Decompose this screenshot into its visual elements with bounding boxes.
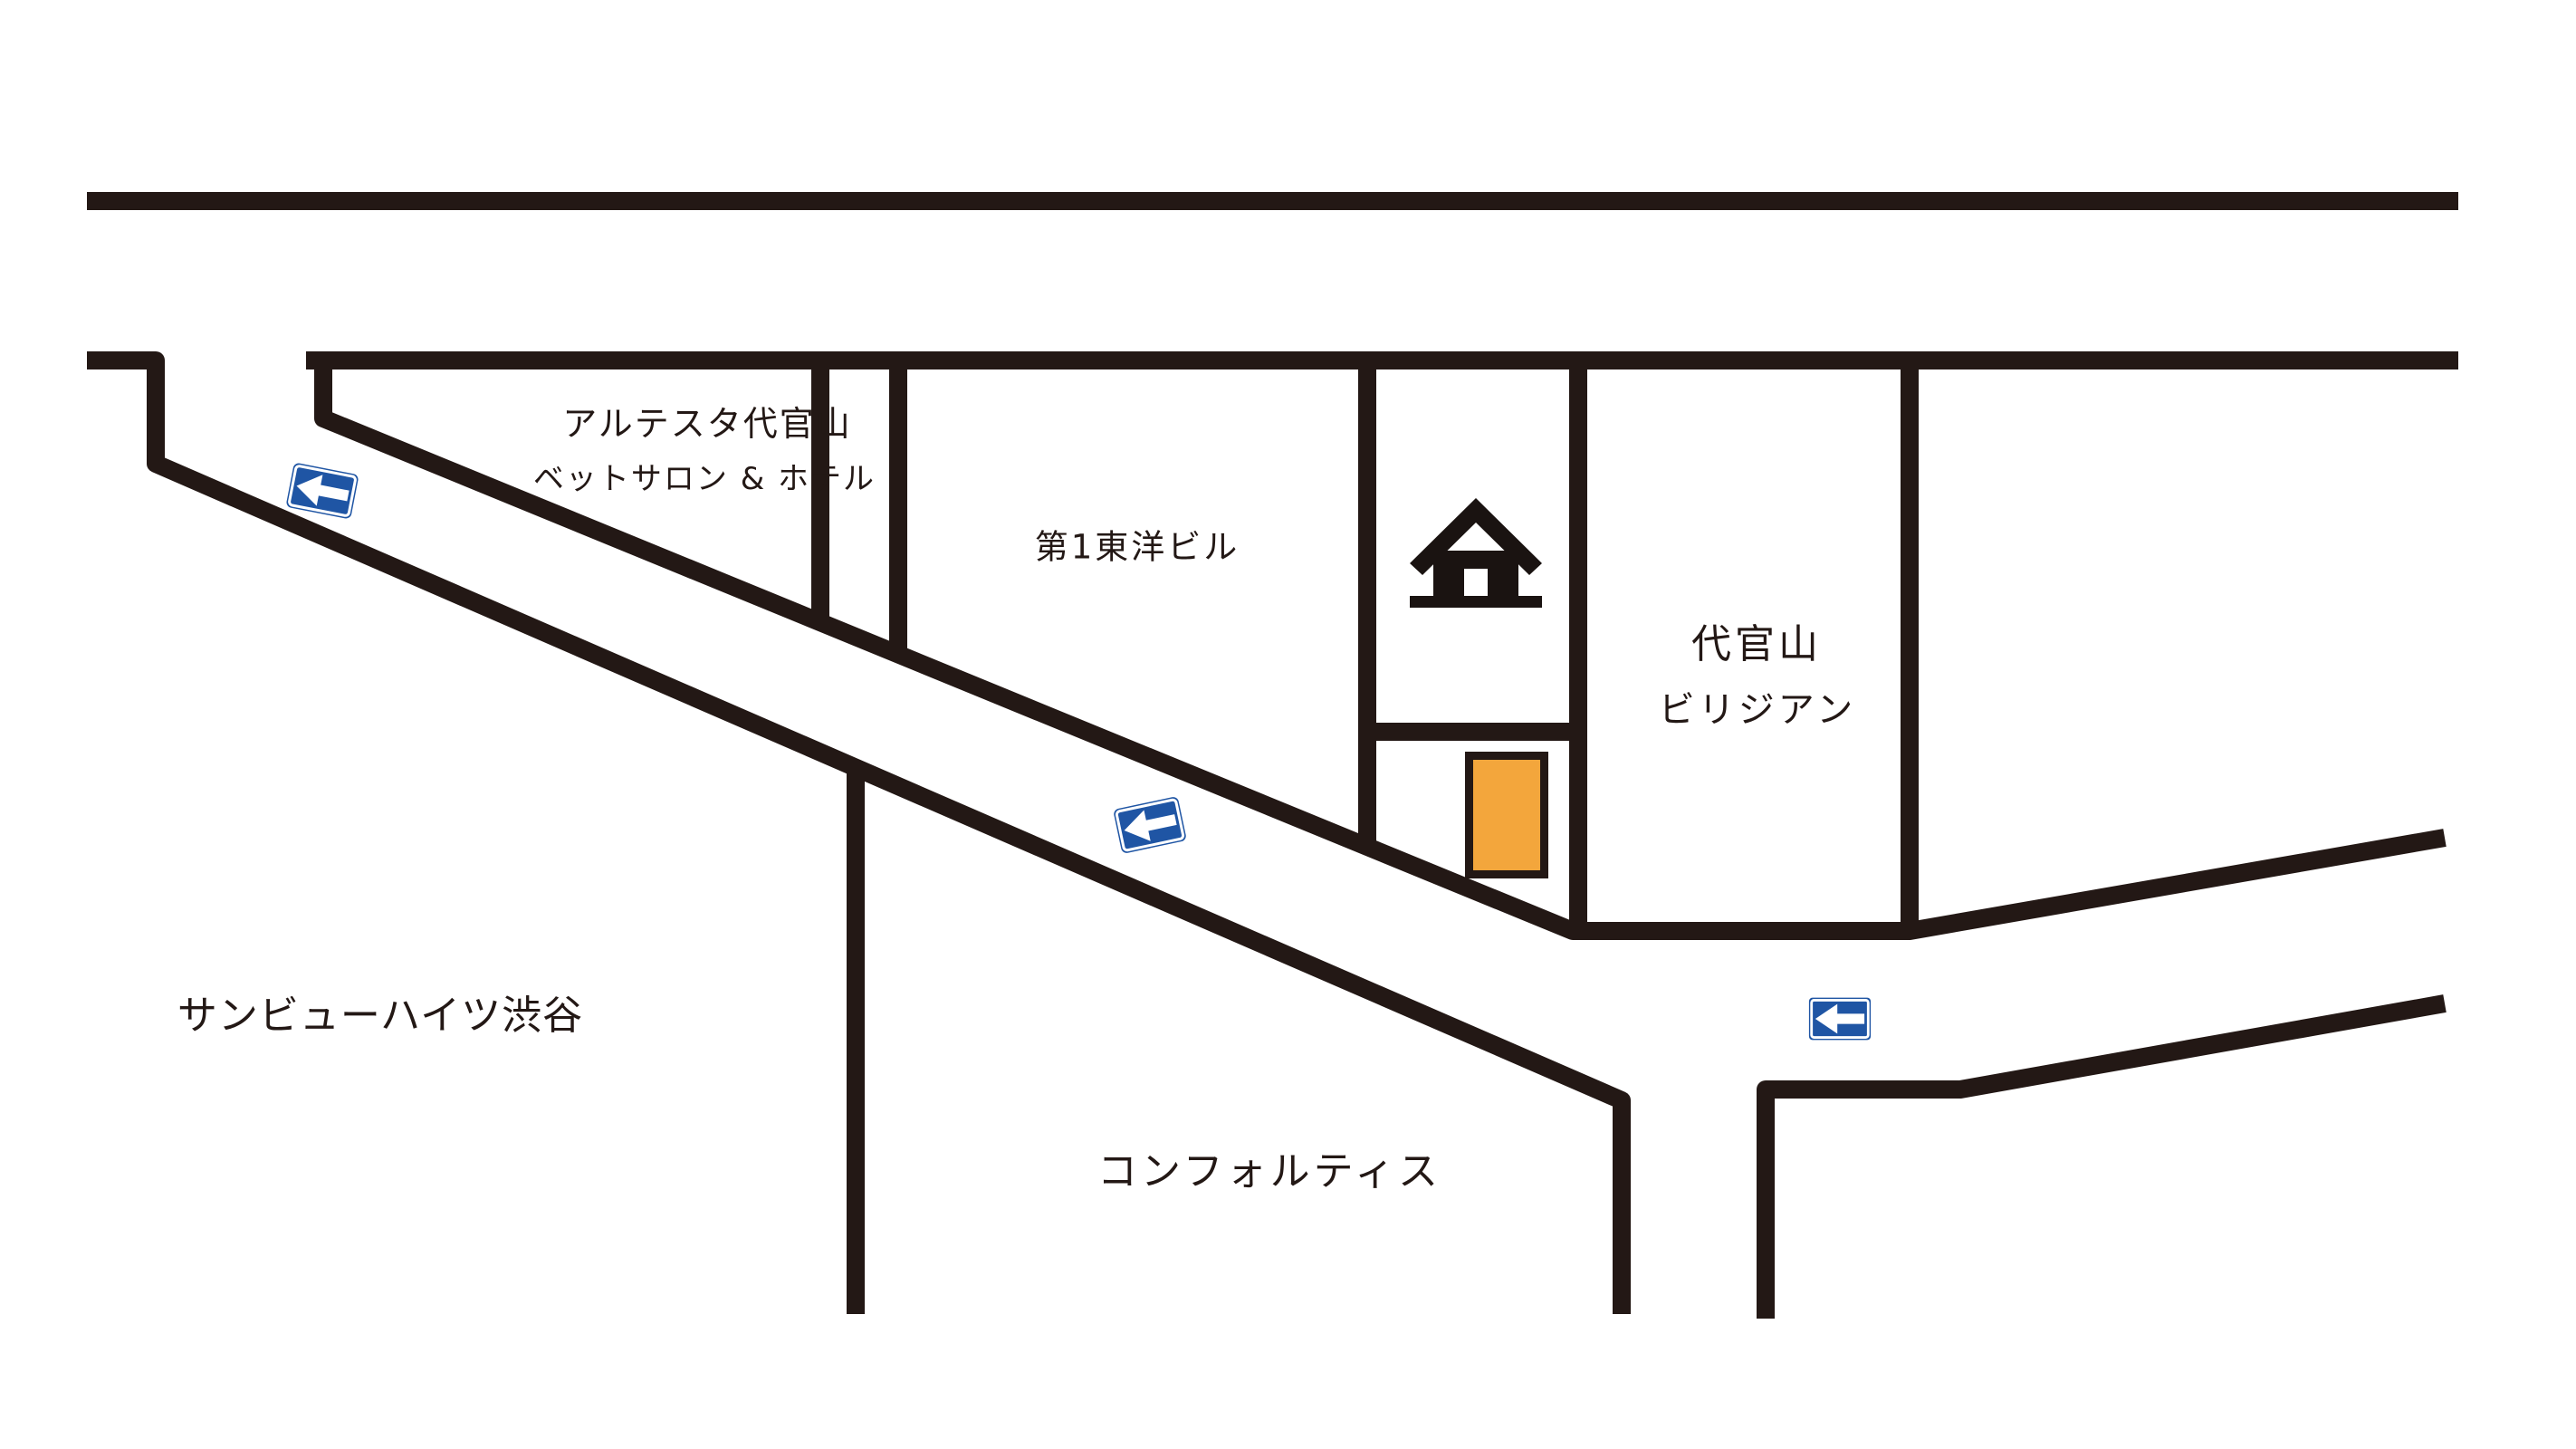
label-comfortis: コンフォルティス	[1097, 1152, 1441, 1192]
label-sunview-heights: サンビューハイツ渋谷	[177, 996, 583, 1036]
label-altesta-line1: アルテスタ代官山	[562, 407, 852, 441]
orange-rectangle-marker	[1465, 752, 1548, 878]
label-toyo-building: 第1東洋ビル	[1035, 531, 1240, 564]
label-daikanyama-line2: ビリジアン	[1659, 692, 1856, 728]
left-arrow-icon	[1808, 996, 1872, 1041]
access-map: アルテスタ代官山 ベットサロン & ホテル 第1東洋ビル 代官山 ビリジアン サ…	[0, 0, 2576, 1449]
label-daikanyama-line1: 代官山	[1691, 625, 1822, 665]
home-icon	[1410, 498, 1542, 614]
road-south-right-edge	[1766, 1003, 2445, 1319]
one-way-sign-lower	[1808, 996, 1872, 1041]
road-diagonal-upper-edge	[323, 360, 2445, 931]
road-network	[0, 0, 2576, 1449]
label-altesta-line2: ベットサロン & ホテル	[533, 464, 876, 494]
